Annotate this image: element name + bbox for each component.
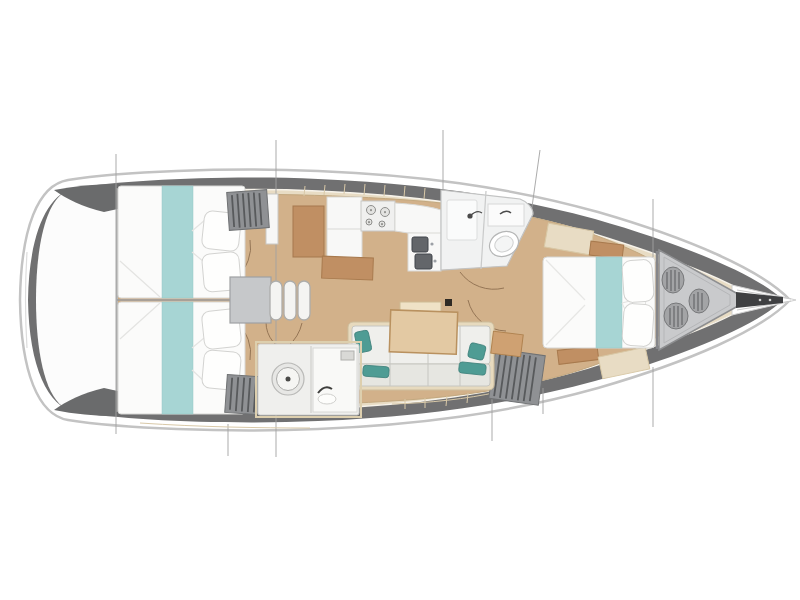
aft-cabin-port	[118, 186, 245, 298]
settee-pillow-teal	[363, 365, 390, 378]
bowsprit-fitting	[769, 299, 772, 302]
galley-stove	[361, 201, 395, 231]
companionway-step	[284, 281, 296, 320]
engine-box	[230, 277, 271, 323]
mast-post	[445, 299, 452, 306]
sink-faucet	[430, 242, 433, 245]
aft-head-basin	[318, 394, 336, 404]
galley-sink	[415, 254, 432, 269]
bowsprit-fitting	[759, 299, 762, 302]
boat-floorplan	[0, 0, 800, 600]
rope-coil	[662, 267, 684, 293]
forward-berth-pillow	[622, 259, 655, 303]
hanging-locker-forward	[489, 349, 545, 405]
rope-coil	[689, 289, 709, 313]
galley-sink	[412, 237, 428, 252]
aft-head	[256, 342, 361, 417]
floorplan-svg	[0, 0, 800, 600]
settee-pillow-teal	[458, 362, 486, 376]
aft-head-shelf-box	[341, 351, 354, 360]
companionway-step	[298, 281, 310, 320]
sink-faucet	[433, 259, 436, 262]
transom-deck	[36, 188, 118, 412]
shower-tray	[447, 200, 477, 240]
forward-berth-pillow	[622, 303, 655, 347]
rope-coil	[664, 303, 688, 329]
side-cabinet	[491, 331, 523, 356]
galley-worktop	[395, 203, 441, 234]
galley-bench	[322, 256, 374, 280]
forward-berth-runner	[596, 257, 622, 348]
companionway-step	[270, 281, 282, 320]
galley-counter	[293, 206, 324, 257]
hanging-locker-aft-top	[227, 190, 270, 231]
aft-berth-starboard-runner	[162, 302, 193, 414]
head-vanity-sink	[488, 204, 524, 226]
aft-berth-port-runner	[162, 186, 193, 298]
settee-pillow-teal	[467, 342, 486, 360]
aft-head-toilet-dot	[286, 377, 291, 382]
saloon-table	[389, 310, 457, 354]
